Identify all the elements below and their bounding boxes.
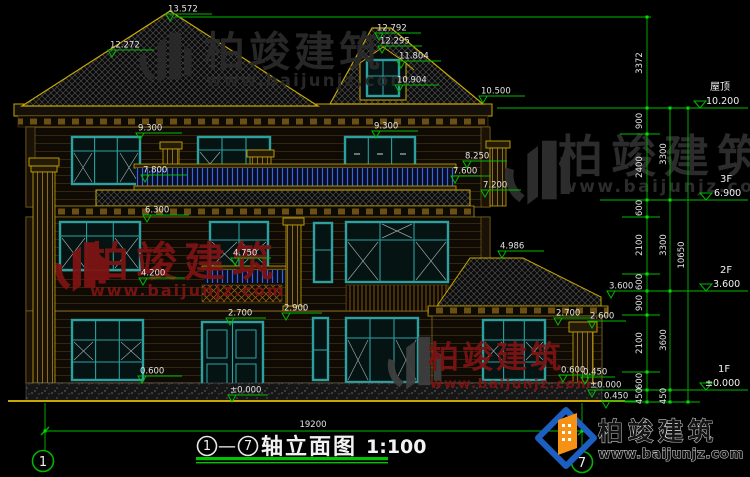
spot-elevation-label: 12.295 [380,37,410,47]
drawing-title: 1 — 7 轴立面图 1:100 [196,434,426,463]
level-flag-name: 3F [720,174,732,185]
spot-elevation-label: 7.200 [483,181,507,191]
spot-elevation-label: 0.450 [583,368,607,378]
spot-elevation-marker: 2.600 [588,312,626,329]
spot-elevation-label: 11.804 [399,52,429,62]
vdim-label: 10650 [677,241,687,268]
axis-bubble-1: 1 [33,451,54,472]
window-2f-right [346,222,448,311]
vdim-label: 3600 [659,329,669,351]
spot-elevation-label: 2.600 [590,312,614,322]
vdim-label: 2400 [635,156,645,178]
level-flag-name: 屋顶 [710,81,730,93]
window-2f-narrow [314,223,332,282]
level-flag-1f: 1F ±0.000 [695,364,748,390]
spot-elevation-label: ±0.000 [230,386,261,396]
vdim-label: 3300 [659,234,669,256]
watermark-brand: 柏竣建筑 [204,28,384,76]
level-flag-2f: 2F 3.600 [695,265,748,291]
vdim-label: 600 [635,200,645,216]
spot-elevation-label: 7.600 [453,167,477,177]
watermark-bottom-red: 柏竣建筑 www.baijunjz.com [388,337,592,392]
window-1f-left [72,320,143,380]
watermark-url: www.baijunjz.com [430,376,592,392]
width-dim-label: 19200 [299,420,326,430]
vdim-label: 3300 [659,143,669,165]
watermark-brand: 柏竣建筑 [428,340,564,376]
spot-elevation-label: 6.300 [145,206,169,216]
axis-number: 1 [39,455,47,470]
footer-brand-text: 柏竣建筑 [598,417,718,446]
level-flag-value: 10.200 [706,96,739,107]
logo-building-icon [558,413,577,455]
level-flag-value: ±0.000 [705,378,740,389]
vdim-label: 900 [635,113,645,129]
vdim-label: 900 [635,295,645,311]
spot-elevation-label: 9.300 [374,122,398,132]
level-flag-roof: 屋顶 10.200 [688,81,748,108]
level-flag-value: 6.900 [714,188,741,199]
title-dash: — [218,436,236,457]
spot-elevation-label: ±0.000 [590,381,621,391]
main-eave-fascia [14,104,492,127]
spot-elevation-label: 9.300 [138,124,162,134]
title-text: 轴立面图 [261,434,357,460]
title-underline [196,457,388,460]
spot-elevation-label: 4.200 [141,269,165,279]
spot-elevation-label: 7.800 [143,166,167,176]
spot-elevation-marker: 10.500 [479,87,525,104]
level-flag-name: 2F [720,265,732,276]
spot-elevation-label: 10.904 [397,76,427,86]
vdim-label: 600 [635,373,645,389]
watermark-url: www.baijunjz.com [90,281,285,300]
watermark-url: www.baijunjz.com [206,71,410,90]
vdim-label: 2100 [635,234,645,256]
vdim-label: 600 [635,274,645,290]
spot-elevation-marker: 4.986 [498,242,544,259]
level-flag-value: 3.600 [713,279,740,290]
spot-elevation-label: 0.450 [604,392,628,402]
spot-elevation-label: 12.272 [110,41,140,51]
spot-elevation-label: 2.700 [228,309,252,319]
spot-elevation-label: 12.792 [377,24,407,34]
title-axis-end: 7 [244,439,252,454]
vdim-label: 2100 [635,332,645,354]
axis-number: 7 [578,456,586,471]
window-1f-narrow [313,318,328,380]
footer-brand-logo: 柏竣建筑 www.baijunjz.com [538,410,744,466]
spot-elevation-label: 8.250 [465,152,489,162]
spot-elevation-label: 0.600 [561,366,585,376]
spot-elevation-label: 13.572 [168,5,198,15]
spot-elevation-label: 0.600 [140,367,164,377]
balcony-railing-3f [134,164,456,190]
cad-elevation-canvas: 柏竣建筑 www.baijunjz.com 柏竣建筑 www.baijunjz.… [0,0,750,477]
title-scale: 1:100 [366,436,426,458]
spot-elevation-label: 3.600 [609,282,633,292]
level-flag-name: 1F [718,364,730,375]
vdim-label: 450 [659,388,669,404]
canopy-roof-2f [54,190,474,217]
title-axis-start: 1 [203,439,211,454]
footer-brand-url: www.baijunjz.com [598,446,744,462]
watermark-brand: 柏竣建筑 [88,238,280,286]
title-underline [196,462,388,463]
watermark-left-red: 柏竣建筑 www.baijunjz.com [55,238,285,300]
spot-elevation-label: 10.500 [481,87,511,97]
vdim-label: 450 [635,388,645,404]
spot-elevation-label: 2.900 [284,304,308,314]
spot-elevation-label: 4.986 [500,242,524,252]
window-3f-left [72,137,140,184]
chimney [29,158,59,383]
spot-elevation-marker: 0.450 [602,392,636,409]
vdim-label: 3372 [635,52,645,74]
spot-elevation-label: 2.700 [556,309,580,319]
spot-elevation-label: 4.750 [233,249,257,259]
pilaster-2f-mid [283,218,304,312]
